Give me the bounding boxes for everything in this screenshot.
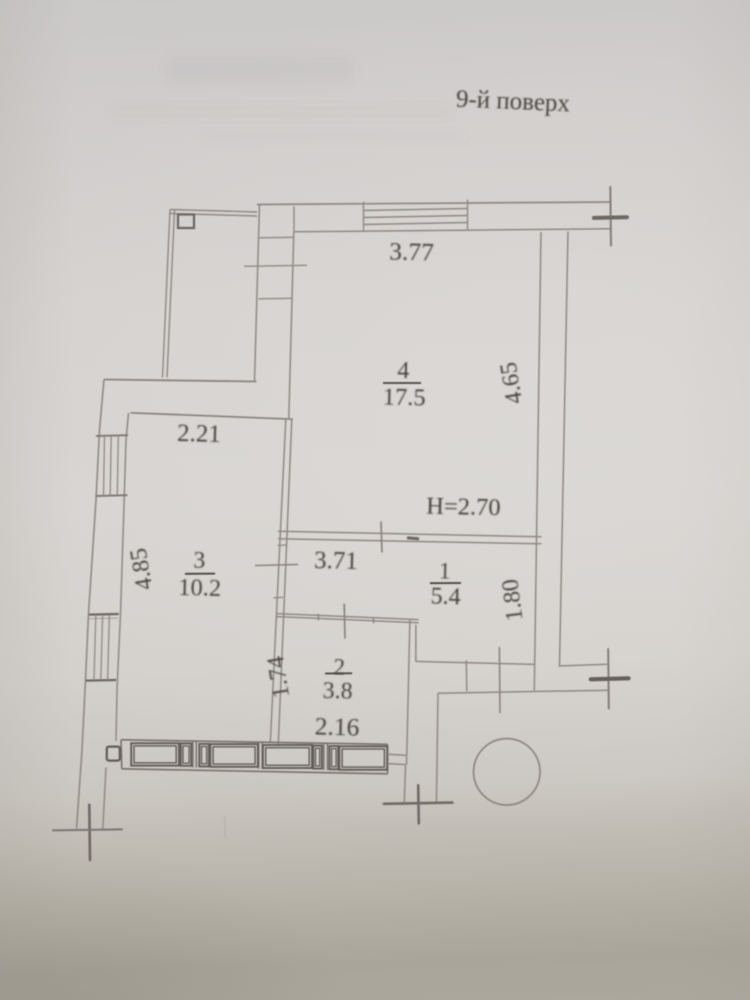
- svg-text:2.16: 2.16: [314, 711, 359, 741]
- svg-text:17.5: 17.5: [382, 383, 426, 411]
- svg-text:3.8: 3.8: [322, 678, 353, 705]
- svg-text:1.80: 1.80: [498, 578, 529, 623]
- svg-text:2: 2: [333, 654, 345, 679]
- svg-text:4.85: 4.85: [126, 546, 158, 592]
- svg-text:3.77: 3.77: [389, 236, 435, 266]
- svg-text:1.74: 1.74: [263, 654, 295, 700]
- svg-text:10.2: 10.2: [178, 574, 222, 602]
- svg-text:9-й поверх: 9-й поверх: [455, 86, 571, 118]
- svg-text:4.65: 4.65: [496, 360, 528, 406]
- svg-text:2.21: 2.21: [177, 420, 221, 448]
- svg-text:3.71: 3.71: [314, 547, 358, 575]
- svg-text:3: 3: [193, 548, 206, 574]
- svg-text:4: 4: [397, 358, 410, 384]
- svg-text:1: 1: [439, 558, 451, 583]
- svg-text:H=2.70: H=2.70: [426, 493, 501, 522]
- svg-text:5.4: 5.4: [430, 584, 461, 611]
